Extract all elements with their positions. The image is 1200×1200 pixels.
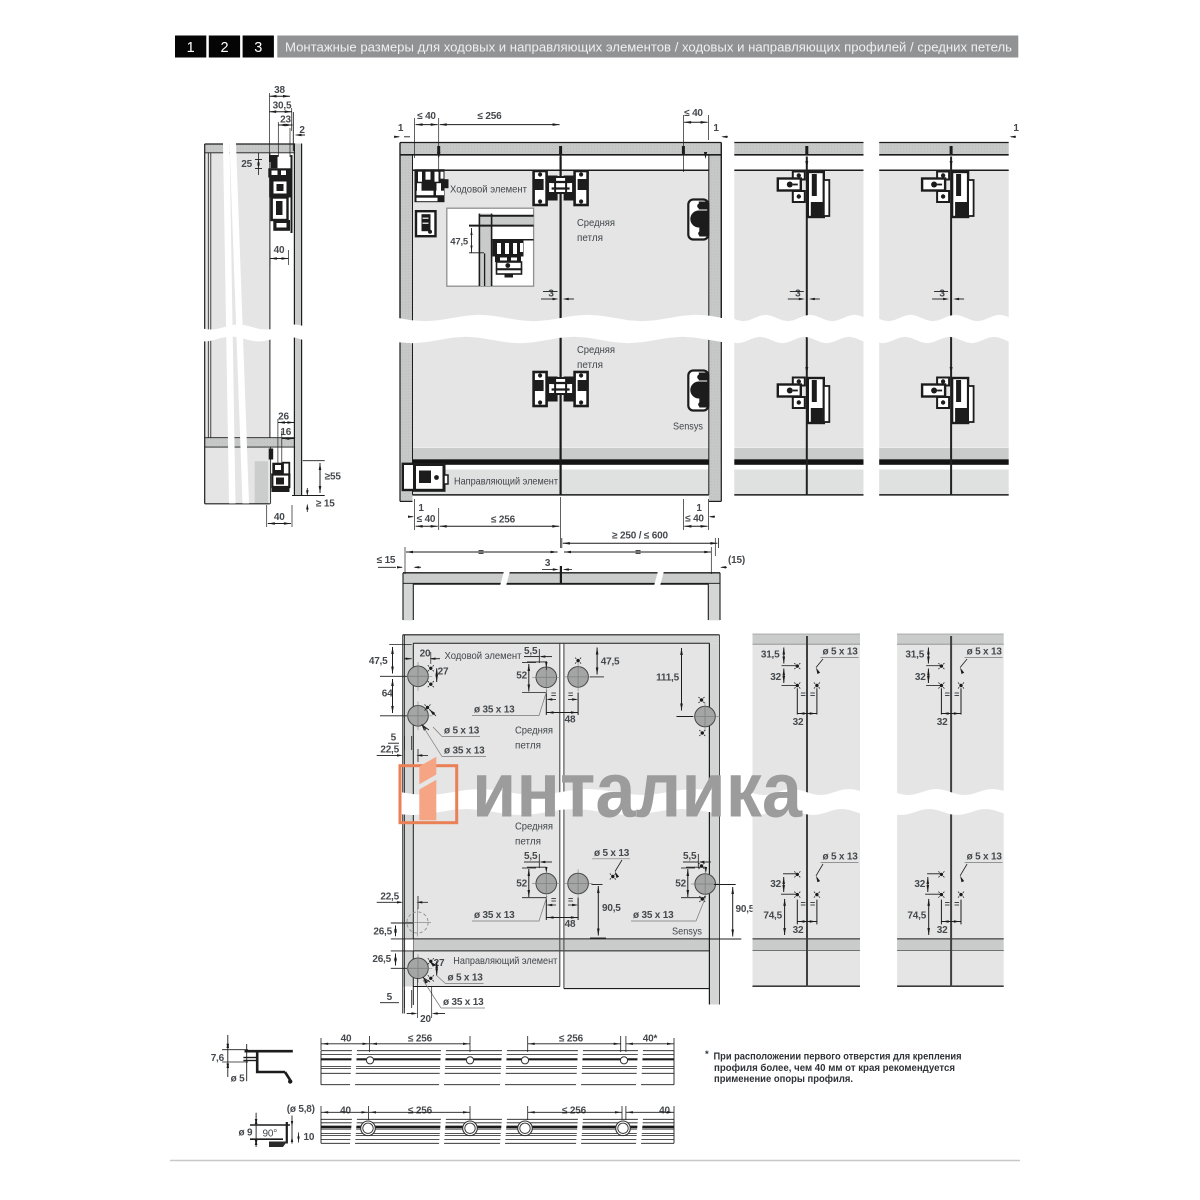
svg-text:=: =	[945, 690, 950, 700]
svg-text:=: =	[551, 895, 556, 905]
svg-text:20: 20	[420, 649, 431, 660]
svg-text:≥55: ≥55	[325, 472, 342, 483]
svg-text:5,5: 5,5	[524, 646, 538, 657]
svg-text:27: 27	[438, 667, 449, 678]
svg-text:≤ 256: ≤ 256	[562, 1106, 587, 1117]
svg-text:петля: петля	[515, 836, 541, 848]
svg-text:10: 10	[304, 1132, 315, 1143]
svg-text:петля: петля	[577, 359, 603, 371]
svg-text:48: 48	[565, 919, 576, 930]
svg-text:1: 1	[1013, 123, 1019, 134]
svg-text:≤ 256: ≤ 256	[408, 1106, 433, 1117]
svg-text:32: 32	[770, 672, 781, 683]
svg-text:5,5: 5,5	[683, 851, 697, 862]
svg-text:2: 2	[220, 40, 228, 56]
svg-text:74,5: 74,5	[763, 911, 782, 922]
svg-text:=: =	[568, 690, 573, 700]
svg-text:38: 38	[274, 85, 285, 96]
svg-text:Направляющий элемент: Направляющий элемент	[453, 955, 557, 967]
svg-text:≤ 40: ≤ 40	[417, 111, 436, 122]
svg-text:=: =	[800, 690, 805, 700]
svg-text:=: =	[954, 899, 959, 909]
svg-text:3: 3	[795, 289, 801, 300]
svg-text:32: 32	[793, 925, 804, 936]
svg-text:*: *	[705, 1049, 709, 1060]
svg-text:32: 32	[937, 717, 948, 728]
svg-text:52: 52	[516, 671, 527, 682]
svg-text:ø 5 x 13: ø 5 x 13	[967, 852, 1003, 863]
svg-text:ø 5 x 13: ø 5 x 13	[444, 726, 480, 737]
svg-text:При расположении первого отвер: При расположении первого отверстия для к…	[714, 1052, 962, 1063]
svg-text:(ø 5,8): (ø 5,8)	[287, 1104, 315, 1115]
svg-text:ø 5: ø 5	[231, 1074, 245, 1085]
svg-text:26,5: 26,5	[373, 927, 392, 938]
svg-text:≤ 256: ≤ 256	[559, 1034, 584, 1045]
svg-text:инталика: инталика	[472, 746, 803, 834]
svg-text:≤ 40: ≤ 40	[685, 514, 704, 525]
svg-text:25: 25	[241, 159, 252, 170]
svg-text:27: 27	[434, 958, 445, 969]
svg-text:32: 32	[915, 672, 926, 683]
svg-text:74,5: 74,5	[907, 911, 926, 922]
svg-text:26: 26	[278, 412, 289, 423]
svg-text:≤ 256: ≤ 256	[478, 111, 503, 122]
svg-text:петля: петля	[577, 232, 603, 244]
svg-text:≤ 15: ≤ 15	[377, 555, 396, 566]
svg-text:1: 1	[398, 123, 404, 134]
svg-text:5: 5	[387, 992, 393, 1003]
svg-text:32: 32	[937, 925, 948, 936]
svg-text:=: =	[478, 548, 484, 559]
svg-text:Ходовой элемент: Ходовой элемент	[445, 650, 522, 662]
svg-text:3: 3	[254, 40, 262, 56]
svg-text:20: 20	[420, 1014, 431, 1025]
svg-text:1: 1	[418, 503, 424, 514]
svg-text:32: 32	[914, 879, 925, 890]
svg-text:ø 5 x 13: ø 5 x 13	[594, 848, 630, 859]
svg-text:31,5: 31,5	[761, 650, 780, 661]
svg-text:≥ 15: ≥ 15	[316, 499, 335, 510]
svg-text:Ходовой элемент: Ходовой элемент	[450, 184, 527, 196]
svg-text:3: 3	[548, 289, 554, 300]
svg-text:≤ 256: ≤ 256	[491, 515, 516, 526]
svg-text:31,5: 31,5	[905, 650, 924, 661]
svg-text:40: 40	[274, 512, 285, 523]
svg-text:Средняя: Средняя	[577, 217, 615, 229]
svg-text:Средняя: Средняя	[515, 725, 553, 737]
svg-text:48: 48	[565, 715, 576, 726]
svg-text:64: 64	[382, 689, 393, 700]
svg-text:ø 35 x 13: ø 35 x 13	[633, 910, 674, 921]
svg-text:40: 40	[341, 1034, 352, 1045]
svg-text:≥ 250 / ≤ 600: ≥ 250 / ≤ 600	[612, 531, 668, 542]
svg-text:5: 5	[391, 733, 397, 744]
svg-text:52: 52	[675, 878, 686, 889]
svg-text:40: 40	[274, 245, 285, 256]
svg-text:47,5: 47,5	[450, 237, 469, 248]
svg-text:≤ 256: ≤ 256	[408, 1034, 433, 1045]
svg-text:ø 35 x 13: ø 35 x 13	[443, 997, 484, 1008]
svg-text:Sensys: Sensys	[672, 926, 702, 938]
svg-text:1: 1	[713, 123, 719, 134]
svg-text:ø 5 x 13: ø 5 x 13	[967, 647, 1003, 658]
svg-text:47,5: 47,5	[601, 657, 620, 668]
svg-text:26,5: 26,5	[372, 954, 391, 965]
svg-text:ø 5 x 13: ø 5 x 13	[823, 647, 859, 658]
svg-text:Направляющий элемент: Направляющий элемент	[454, 476, 558, 488]
svg-text:Средняя: Средняя	[577, 344, 615, 356]
svg-text:40: 40	[340, 1106, 351, 1117]
svg-text:≤ 40: ≤ 40	[417, 514, 436, 525]
svg-text:111,5: 111,5	[656, 673, 680, 684]
svg-text:профиля более, чем 40 мм от кр: профиля более, чем 40 мм от края рекомен…	[714, 1063, 955, 1074]
svg-text:1: 1	[696, 503, 702, 514]
svg-text:ø 35 x 13: ø 35 x 13	[474, 705, 515, 716]
svg-text:90,5: 90,5	[602, 903, 621, 914]
svg-text:=: =	[810, 690, 815, 700]
svg-text:40: 40	[659, 1106, 670, 1117]
svg-text:32: 32	[793, 717, 804, 728]
svg-text:=: =	[635, 548, 641, 559]
svg-text:47,5: 47,5	[369, 656, 388, 667]
svg-text:52: 52	[516, 878, 527, 889]
svg-text:3: 3	[939, 289, 945, 300]
svg-text:ø 9: ø 9	[239, 1128, 253, 1139]
svg-text:90°: 90°	[263, 1129, 278, 1140]
svg-text:22,5: 22,5	[380, 892, 399, 903]
svg-text:1: 1	[187, 40, 195, 56]
svg-text:22,5: 22,5	[380, 745, 399, 756]
svg-text:=: =	[945, 899, 950, 909]
svg-text:ø 5 x 13: ø 5 x 13	[448, 973, 484, 984]
svg-text:32: 32	[770, 879, 781, 890]
svg-text:=: =	[551, 690, 556, 700]
svg-text:применение опоры профиля.: применение опоры профиля.	[714, 1074, 853, 1085]
svg-text:≤ 40: ≤ 40	[684, 108, 703, 119]
svg-text:30,5: 30,5	[273, 101, 292, 112]
svg-text:ø 5 x 13: ø 5 x 13	[823, 852, 859, 863]
svg-text:ø 35 x 13: ø 35 x 13	[474, 910, 515, 921]
svg-text:(15): (15)	[728, 555, 745, 566]
svg-text:40*: 40*	[643, 1034, 658, 1045]
svg-text:Sensys: Sensys	[673, 421, 703, 433]
svg-text:=: =	[800, 899, 805, 909]
svg-text:=: =	[810, 899, 815, 909]
svg-text:=: =	[568, 895, 573, 905]
svg-text:3: 3	[545, 558, 551, 569]
svg-text:Монтажные размеры для ходовых: Монтажные размеры для ходовых и направля…	[285, 40, 1012, 55]
svg-text:=: =	[954, 690, 959, 700]
svg-text:90,5: 90,5	[736, 904, 755, 915]
svg-text:5,5: 5,5	[524, 851, 538, 862]
